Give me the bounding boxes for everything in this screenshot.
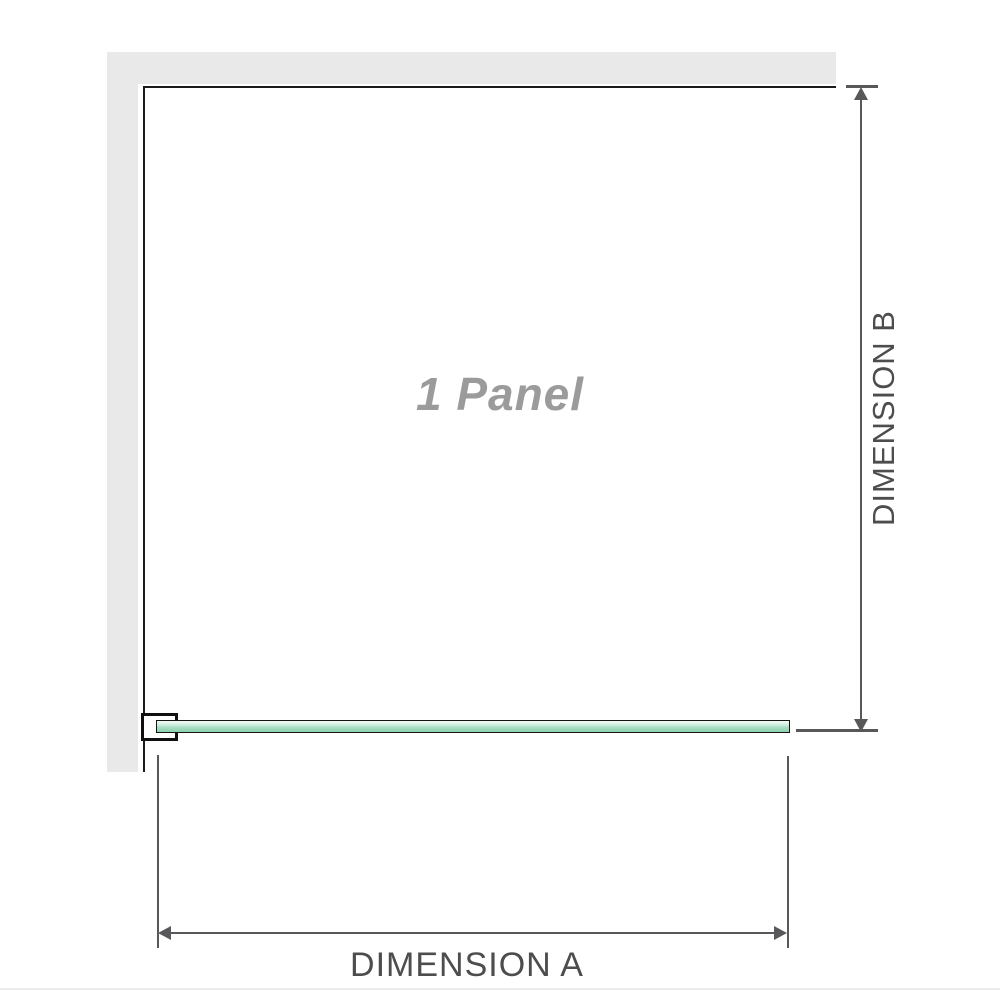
- dim-a-line: [163, 932, 783, 934]
- dim-b-arrow-up-icon: [854, 87, 868, 100]
- wall-top-bar: [107, 52, 836, 84]
- dim-b-arrow-down-icon: [854, 719, 868, 732]
- dim-a-right-extension-line: [787, 756, 789, 948]
- panel-label: 1 Panel: [350, 368, 650, 420]
- glass-panel-bar: [156, 720, 790, 733]
- panel-outline-left: [143, 86, 145, 772]
- wall-left-bar: [107, 52, 138, 772]
- dim-a-arrow-right-icon: [774, 926, 787, 940]
- diagram-canvas: 1 Panel DIMENSION B DIMENSION A: [0, 0, 1000, 1000]
- dim-a-arrow-left-icon: [158, 926, 171, 940]
- dim-a-left-extension-line: [157, 755, 159, 948]
- dimension-a-label: DIMENSION A: [317, 946, 617, 984]
- dim-b-line: [860, 91, 862, 725]
- dimension-b-label: DIMENSION B: [869, 268, 899, 568]
- panel-outline-top: [143, 86, 836, 88]
- bottom-separator-line: [0, 988, 1000, 990]
